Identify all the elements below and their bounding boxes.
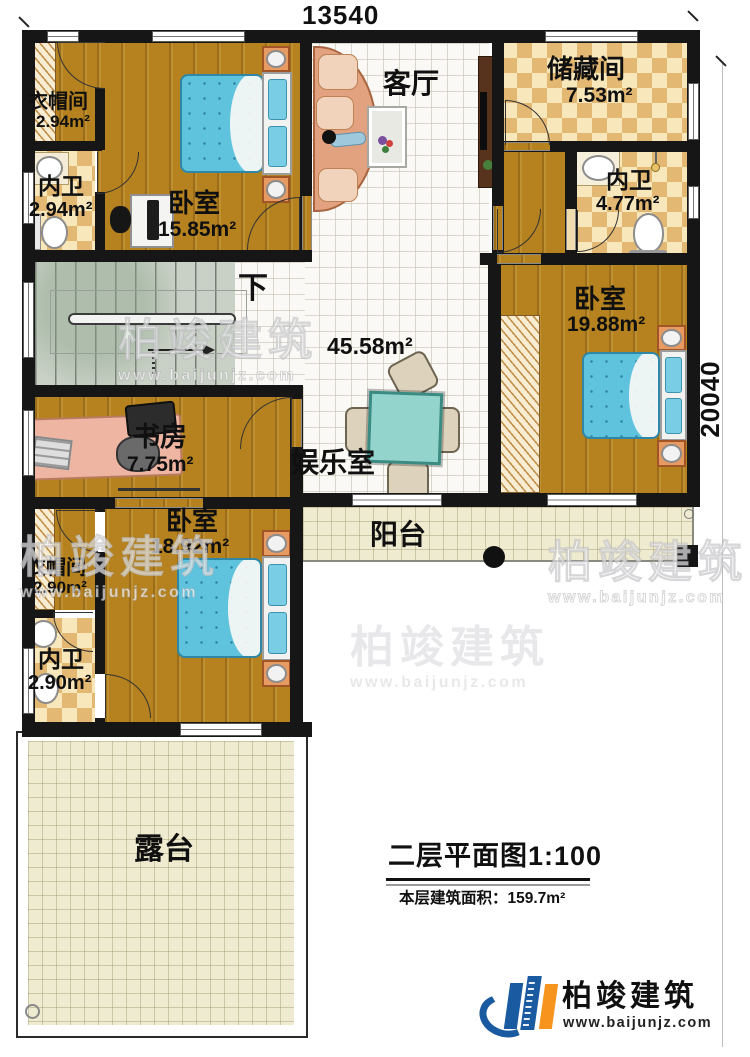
wall — [22, 30, 35, 737]
room-area-bath-bottom: 2.90m² — [28, 673, 91, 693]
brand-url: www.baijunjz.com — [563, 1016, 712, 1031]
bed-pillow — [665, 357, 682, 393]
room-label-cloakroom-bottom: 衣帽间 — [26, 558, 86, 578]
bedroom-right-wardrobe — [500, 315, 540, 493]
watermark-text: 柏竣建筑 — [350, 625, 550, 671]
room-area-study: 7.75m² — [127, 454, 194, 475]
room-area-cloakroom-bottom: 2.90m² — [33, 579, 87, 596]
wall — [22, 385, 303, 397]
dimension-tick — [687, 10, 698, 21]
bed-headboard — [660, 350, 687, 441]
window — [23, 410, 34, 476]
door-leaf — [118, 488, 200, 491]
door-opening — [497, 254, 541, 264]
dimension-right: 20040 — [696, 349, 724, 449]
dimension-tick — [18, 16, 29, 27]
room-area-bath-top-right: 4.77m² — [596, 194, 659, 214]
wall — [290, 497, 303, 737]
bed-mattress — [582, 352, 660, 439]
room-label-living: 客厅 — [383, 70, 439, 98]
lamp-pull-knob — [651, 163, 660, 172]
dimension-line-right — [722, 62, 723, 1047]
window — [688, 186, 699, 219]
stair-arrow-head — [203, 344, 215, 356]
nightstand — [262, 46, 290, 72]
brand-name: 柏竣建筑 — [562, 982, 698, 1012]
sofa-cushion — [318, 54, 358, 90]
game-table — [367, 391, 443, 466]
room-label-terrace: 露台 — [134, 835, 194, 865]
nightstand — [657, 325, 686, 351]
room-label-cloakroom-top: 衣帽间 — [28, 92, 88, 112]
balcony-column-round — [483, 546, 505, 568]
wall — [22, 250, 312, 262]
wall — [95, 552, 105, 674]
room-area-bedroom-bottom: 18.92m² — [151, 536, 229, 557]
nightstand — [262, 660, 291, 687]
window — [180, 723, 262, 736]
title-underline — [386, 878, 590, 881]
person-head — [322, 130, 336, 144]
brand-logo-bar — [520, 976, 542, 1030]
window — [688, 83, 699, 140]
nightstand — [262, 530, 291, 557]
bed-pillow — [268, 126, 287, 167]
bed-pillow — [268, 612, 287, 654]
bed-pillow — [268, 79, 287, 120]
room-area-cloakroom-top: 2.94m² — [36, 113, 90, 130]
room-area-bath-top-left: 2.94m² — [29, 200, 92, 220]
desk-chair — [110, 206, 131, 233]
bed-duvet — [230, 74, 264, 173]
floor-plan: 衣帽间 2.94m² 内卫 2.94m² 卧室 15.85m² 客厅 储藏间 7… — [0, 0, 750, 1057]
room-label-bedroom-bottom: 卧室 — [166, 508, 218, 534]
room-label-bedroom-right: 卧室 — [574, 286, 626, 312]
room-label-study: 书房 — [133, 424, 187, 451]
stair-arrow-line — [148, 349, 204, 351]
watermark-url: www.baijunjz.com — [350, 675, 550, 692]
balcony-slider-window — [352, 494, 442, 506]
watermark: 柏竣建筑 www.baijunjz.com — [350, 625, 550, 692]
bed-mattress — [180, 74, 264, 173]
room-label-bedroom-top: 卧室 — [168, 190, 220, 216]
bed-mattress — [177, 558, 262, 658]
bed-headboard — [262, 556, 292, 661]
window — [152, 31, 245, 42]
room-label-bath-top-left: 内卫 — [38, 175, 84, 198]
balcony-column — [677, 545, 698, 567]
room-label-bath-bottom: 内卫 — [38, 648, 84, 671]
bed-duvet — [629, 352, 660, 439]
balcony-slider-window — [547, 494, 637, 506]
wall — [22, 141, 102, 151]
bed-pillow — [268, 564, 287, 606]
brand-logo-bar-orange — [539, 984, 558, 1029]
room-label-storage: 储藏间 — [547, 56, 625, 82]
room-label-balcony: 阳台 — [370, 521, 426, 549]
balcony-ring — [684, 509, 694, 519]
bed-pillow — [665, 398, 682, 434]
bed-duvet — [228, 558, 262, 658]
stair-handrail — [68, 313, 236, 325]
lamp-pull — [655, 150, 657, 164]
floor-area-value: 159.7m² — [508, 890, 566, 907]
terrace-floor — [28, 741, 294, 1025]
room-area-bedroom-top: 15.85m² — [158, 219, 236, 240]
coffee-table — [367, 106, 407, 168]
toilet-bowl — [633, 213, 664, 253]
plan-title: 二层平面图1:100 — [388, 843, 602, 870]
wall — [95, 88, 105, 150]
floor-area-prefix: 本层建筑面积： — [399, 890, 508, 907]
window — [23, 282, 34, 358]
dimension-top: 13540 — [302, 2, 379, 28]
room-area-storage: 7.53m² — [566, 85, 633, 106]
stair-dotted-mark — [152, 352, 155, 376]
window — [545, 31, 638, 42]
door-opening — [566, 209, 576, 250]
door-opening — [291, 399, 302, 447]
wall — [22, 610, 55, 618]
dimension-tick — [715, 55, 726, 66]
sofa-cushion — [318, 168, 358, 202]
sofa-cushion — [316, 96, 354, 130]
table-flowers — [378, 136, 387, 145]
stairs-direction-label: 下 — [238, 274, 268, 304]
wall — [95, 718, 105, 724]
wall — [95, 192, 105, 252]
tv-screen — [480, 92, 487, 150]
room-area-entertainment: 45.58m² — [327, 335, 413, 358]
bed-headboard — [262, 72, 292, 175]
nightstand — [657, 440, 686, 467]
wall — [22, 722, 312, 737]
room-label-bath-top-right: 内卫 — [606, 169, 652, 192]
room-label-entertainment: 娱乐室 — [291, 449, 375, 477]
door-opening — [302, 196, 312, 250]
title-underline-thin — [386, 884, 590, 886]
window — [47, 31, 79, 42]
room-area-bedroom-right: 19.88m² — [567, 314, 645, 335]
watermark-url: www.baijunjz.com — [548, 590, 748, 607]
terrace-ring — [25, 1004, 40, 1019]
wall — [488, 253, 501, 507]
printer — [31, 436, 72, 470]
floor-area-text: 本层建筑面积：159.7m² — [399, 891, 565, 907]
